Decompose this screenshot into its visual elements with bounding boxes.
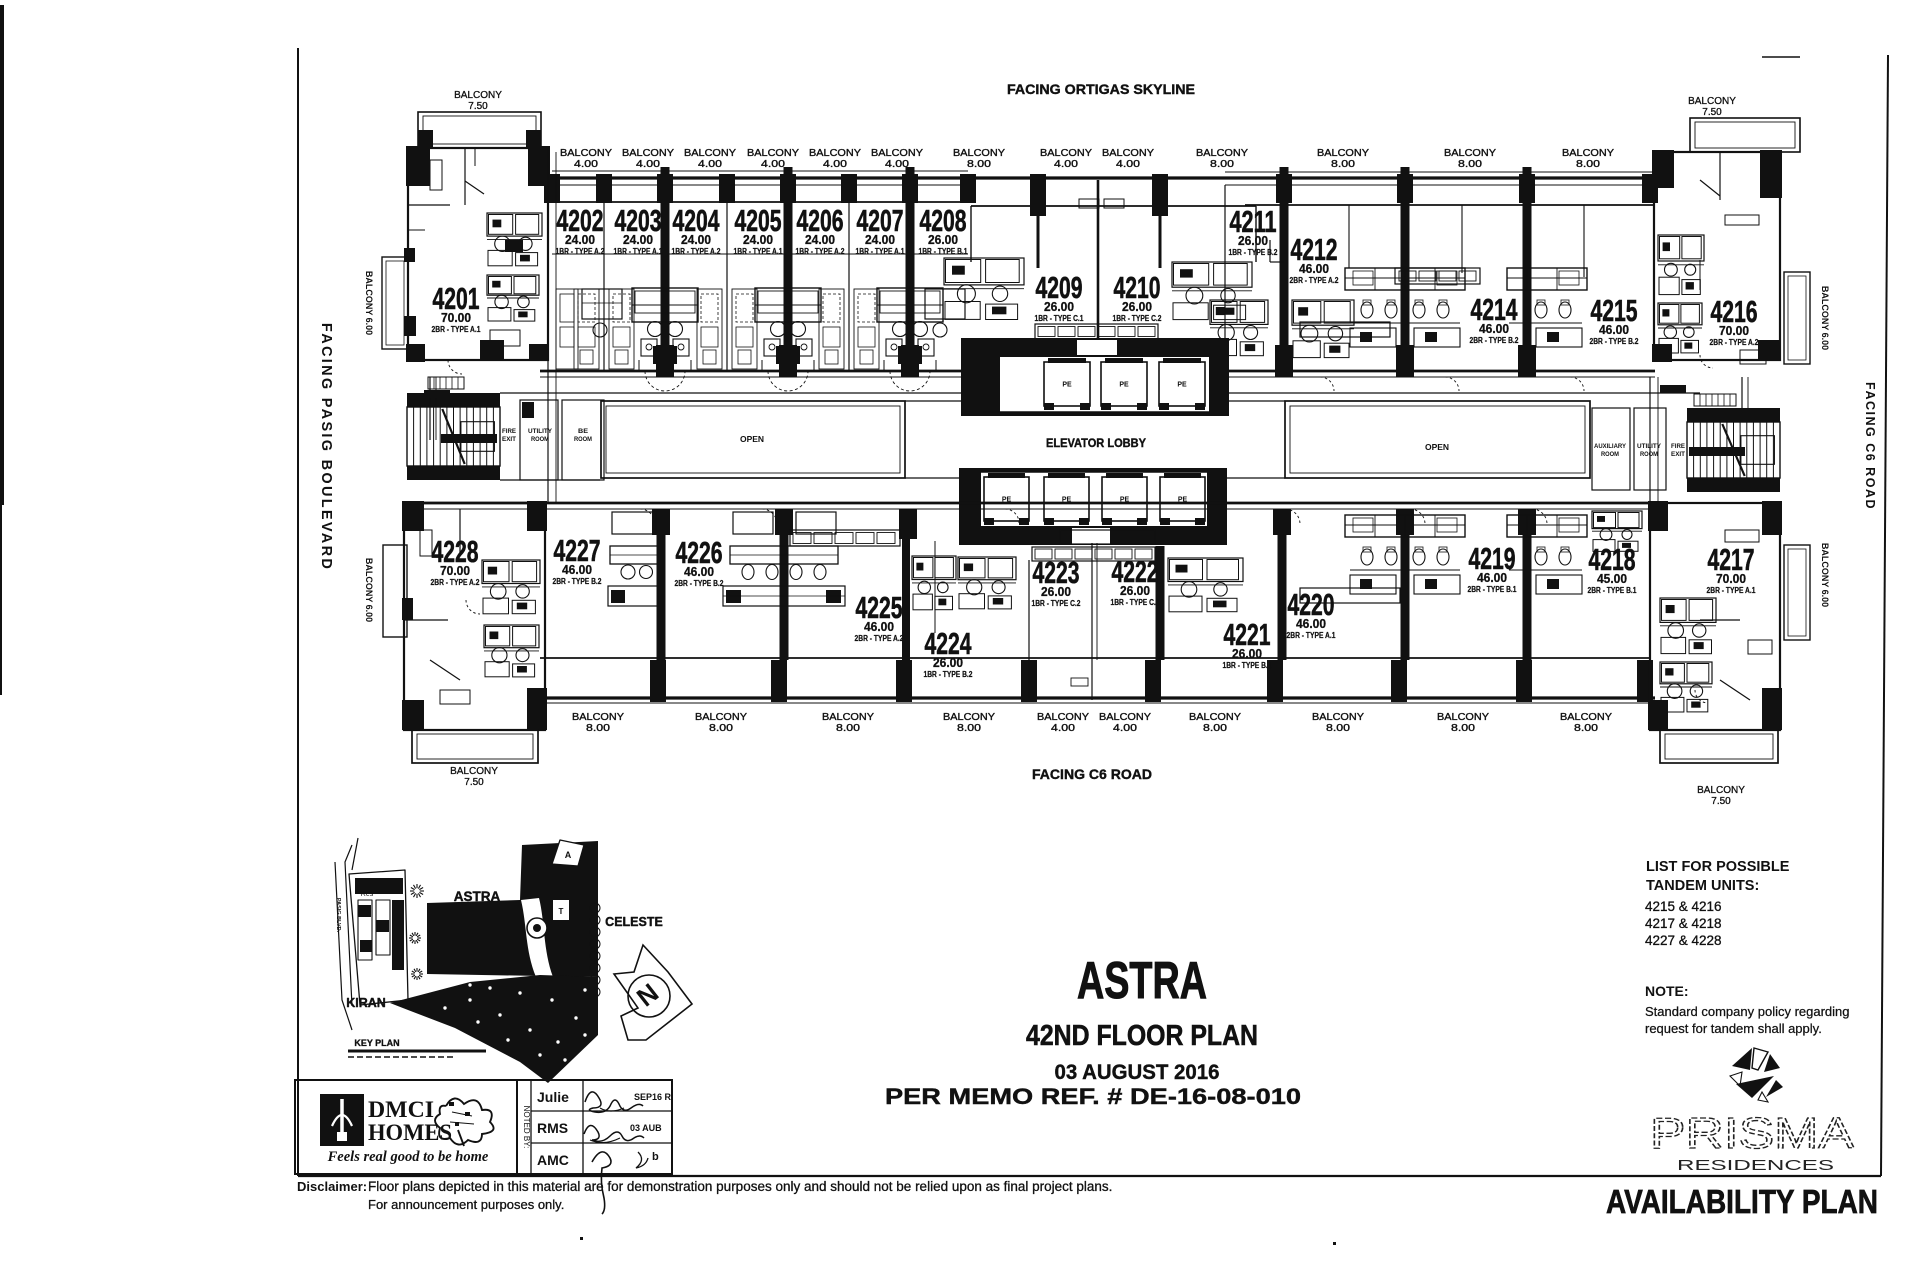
svg-text:BALCONY: BALCONY xyxy=(871,148,923,159)
svg-text:ROOM: ROOM xyxy=(531,436,549,443)
svg-text:FACING C6 ROAD: FACING C6 ROAD xyxy=(1032,766,1152,782)
svg-text:BALCONY: BALCONY xyxy=(809,148,861,159)
svg-text:1BR - TYPE B.1: 1BR - TYPE B.1 xyxy=(919,246,968,256)
svg-text:AMC: AMC xyxy=(537,1152,569,1168)
svg-text:Res: Res xyxy=(361,891,374,898)
svg-text:PER MEMO REF. # DE-16-08-010: PER MEMO REF. # DE-16-08-010 xyxy=(885,1084,1301,1109)
svg-text:1BR - TYPE C.1: 1BR - TYPE C.1 xyxy=(1111,597,1160,607)
svg-text:BALCONY: BALCONY xyxy=(454,90,502,101)
svg-text:8.00: 8.00 xyxy=(836,723,861,734)
svg-text:8.00: 8.00 xyxy=(1576,159,1601,170)
svg-text:4.00: 4.00 xyxy=(636,159,661,170)
svg-text:FACING ORTIGAS SKYLINE: FACING ORTIGAS SKYLINE xyxy=(1007,81,1195,97)
svg-text:BALCONY: BALCONY xyxy=(695,712,747,723)
svg-text:BALCONY: BALCONY xyxy=(943,712,995,723)
svg-text:BALCONY: BALCONY xyxy=(622,148,674,159)
svg-text:2BR - TYPE B.2: 2BR - TYPE B.2 xyxy=(1470,335,1519,345)
svg-text:2BR - TYPE A.2: 2BR - TYPE A.2 xyxy=(431,577,480,587)
svg-text:46.00: 46.00 xyxy=(1299,261,1329,276)
svg-text:4215 & 4216: 4215 & 4216 xyxy=(1645,899,1722,914)
svg-text:4.00: 4.00 xyxy=(1113,723,1138,734)
svg-text:4.00: 4.00 xyxy=(1054,159,1079,170)
svg-text:ELEVATOR LOBBY: ELEVATOR LOBBY xyxy=(1046,436,1146,450)
svg-text:4.00: 4.00 xyxy=(698,159,723,170)
svg-text:AUXILIARY: AUXILIARY xyxy=(1594,443,1627,450)
svg-text:UTILITY: UTILITY xyxy=(528,428,553,435)
svg-text:ASTRA: ASTRA xyxy=(1077,952,1207,1010)
svg-text:2BR - TYPE A.2: 2BR - TYPE A.2 xyxy=(1710,337,1759,347)
svg-text:26.00: 26.00 xyxy=(928,232,958,247)
svg-text:OPEN: OPEN xyxy=(740,434,764,444)
svg-text:46.00: 46.00 xyxy=(684,564,714,579)
svg-text:2BR - TYPE A.1: 2BR - TYPE A.1 xyxy=(1707,585,1756,595)
svg-text:26.00: 26.00 xyxy=(1238,233,1268,248)
svg-text:CELESTE: CELESTE xyxy=(605,915,663,929)
svg-text:AVAILABILITY PLAN: AVAILABILITY PLAN xyxy=(1606,1183,1878,1220)
svg-text:BALCONY 6.00: BALCONY 6.00 xyxy=(1820,286,1830,350)
svg-text:46.00: 46.00 xyxy=(864,619,894,634)
svg-text:8.00: 8.00 xyxy=(1574,723,1599,734)
svg-text:24.00: 24.00 xyxy=(743,232,773,247)
svg-text:BALCONY: BALCONY xyxy=(1317,148,1369,159)
svg-text:7.50: 7.50 xyxy=(1711,796,1731,807)
svg-text:1BR - TYPE A.1: 1BR - TYPE A.1 xyxy=(734,246,783,256)
svg-text:4.00: 4.00 xyxy=(1116,159,1141,170)
svg-text:BALCONY: BALCONY xyxy=(1099,712,1151,723)
svg-text:1BR - TYPE B.1: 1BR - TYPE B.1 xyxy=(1223,660,1272,670)
svg-text:1BR - TYPE A.1: 1BR - TYPE A.1 xyxy=(614,246,663,256)
svg-text:BALCONY: BALCONY xyxy=(747,148,799,159)
svg-text:SEP16 R: SEP16 R xyxy=(634,1092,672,1102)
svg-text:OPEN: OPEN xyxy=(1425,442,1449,452)
svg-text:26.00: 26.00 xyxy=(1232,646,1262,661)
svg-text:For announcement purposes only: For announcement purposes only. xyxy=(368,1197,564,1212)
svg-text:1BR - TYPE C.1: 1BR - TYPE C.1 xyxy=(1035,313,1084,323)
svg-text:FIRE: FIRE xyxy=(502,428,517,435)
svg-text:ROOM: ROOM xyxy=(1640,451,1658,458)
svg-text:BALCONY: BALCONY xyxy=(1697,785,1745,796)
svg-text:46.00: 46.00 xyxy=(562,562,592,577)
svg-text:1BR - TYPE B.2: 1BR - TYPE B.2 xyxy=(924,669,973,679)
svg-text:24.00: 24.00 xyxy=(865,232,895,247)
svg-text:7.50: 7.50 xyxy=(1702,107,1722,118)
svg-text:8.00: 8.00 xyxy=(1210,159,1235,170)
svg-text:24.00: 24.00 xyxy=(805,232,835,247)
svg-text:1BR - TYPE A.2: 1BR - TYPE A.2 xyxy=(556,246,605,256)
svg-text:2BR - TYPE B.2: 2BR - TYPE B.2 xyxy=(553,576,602,586)
svg-text:ASTRA: ASTRA xyxy=(454,889,501,904)
svg-text:70.00: 70.00 xyxy=(1719,323,1749,338)
svg-text:03 AUB: 03 AUB xyxy=(630,1123,662,1133)
svg-text:2BR - TYPE B.1: 2BR - TYPE B.1 xyxy=(1588,585,1637,595)
svg-text:PRISMA: PRISMA xyxy=(1650,1109,1855,1158)
svg-text:BALCONY: BALCONY xyxy=(450,766,498,777)
svg-text:NOTE:: NOTE: xyxy=(1645,983,1689,999)
svg-text:FACING PASIG BOULEVARD: FACING PASIG BOULEVARD xyxy=(318,323,334,571)
svg-text:45.00: 45.00 xyxy=(1597,571,1627,586)
svg-text:Feels real good to be home: Feels real good to be home xyxy=(327,1149,489,1165)
svg-text:FACING C6 ROAD: FACING C6 ROAD xyxy=(1863,382,1877,510)
svg-text:26.00: 26.00 xyxy=(1044,299,1074,314)
svg-text:NOTED BY:: NOTED BY: xyxy=(522,1106,531,1149)
svg-text:2BR - TYPE A.1: 2BR - TYPE A.1 xyxy=(1287,630,1336,640)
svg-text:BALCONY: BALCONY xyxy=(1437,712,1489,723)
svg-text:PE: PE xyxy=(1062,382,1072,389)
svg-text:BALCONY: BALCONY xyxy=(1560,712,1612,723)
svg-text:8.00: 8.00 xyxy=(586,723,611,734)
svg-text:26.00: 26.00 xyxy=(1041,584,1071,599)
svg-text:26.00: 26.00 xyxy=(1122,299,1152,314)
svg-text:2BR - TYPE B.2: 2BR - TYPE B.2 xyxy=(675,578,724,588)
svg-text:26.00: 26.00 xyxy=(1120,583,1150,598)
svg-text:2BR - TYPE B.2: 2BR - TYPE B.2 xyxy=(1590,336,1639,346)
svg-text:42ND FLOOR PLAN: 42ND FLOOR PLAN xyxy=(1026,1020,1258,1052)
svg-text:RMS: RMS xyxy=(537,1120,568,1136)
svg-text:b: b xyxy=(652,1151,659,1163)
svg-text:FIRE: FIRE xyxy=(1671,443,1686,450)
svg-text:KEY PLAN: KEY PLAN xyxy=(354,1038,399,1048)
svg-text:24.00: 24.00 xyxy=(565,232,595,247)
svg-text:46.00: 46.00 xyxy=(1599,322,1629,337)
svg-text:24.00: 24.00 xyxy=(681,232,711,247)
svg-text:PE: PE xyxy=(1177,382,1187,389)
svg-text:BALCONY: BALCONY xyxy=(572,712,624,723)
svg-text:BE: BE xyxy=(578,428,589,435)
svg-text:26.00: 26.00 xyxy=(933,655,963,670)
svg-text:7.50: 7.50 xyxy=(468,101,488,112)
svg-text:BALCONY: BALCONY xyxy=(953,148,1005,159)
svg-text:ROOM: ROOM xyxy=(1601,451,1619,458)
svg-text:2BR - TYPE A.1: 2BR - TYPE A.1 xyxy=(432,324,481,334)
svg-text:4.00: 4.00 xyxy=(885,159,910,170)
svg-text:1BR - TYPE A.2: 1BR - TYPE A.2 xyxy=(672,246,721,256)
svg-text:7.50: 7.50 xyxy=(464,777,484,788)
svg-text:8.00: 8.00 xyxy=(1326,723,1351,734)
svg-text:BALCONY: BALCONY xyxy=(1102,148,1154,159)
svg-text:LIST FOR POSSIBLE: LIST FOR POSSIBLE xyxy=(1646,859,1790,875)
svg-text:BALCONY: BALCONY xyxy=(1037,712,1089,723)
svg-text:8.00: 8.00 xyxy=(709,723,734,734)
svg-text:2BR - TYPE B.1: 2BR - TYPE B.1 xyxy=(1468,584,1517,594)
svg-text:1BR - TYPE C.2: 1BR - TYPE C.2 xyxy=(1032,598,1081,608)
svg-text:BALCONY 6.00: BALCONY 6.00 xyxy=(364,558,374,622)
svg-text:2BR - TYPE A.2: 2BR - TYPE A.2 xyxy=(855,633,904,643)
svg-text:TANDEM UNITS:: TANDEM UNITS: xyxy=(1646,878,1759,894)
svg-text:1BR - TYPE A.2: 1BR - TYPE A.2 xyxy=(796,246,845,256)
svg-text:03 AUGUST 2016: 03 AUGUST 2016 xyxy=(1055,1061,1220,1084)
svg-text:8.00: 8.00 xyxy=(967,159,992,170)
svg-text:46.00: 46.00 xyxy=(1296,616,1326,631)
svg-text:T: T xyxy=(559,907,564,916)
svg-text:8.00: 8.00 xyxy=(1458,159,1483,170)
svg-text:PE: PE xyxy=(1119,382,1129,389)
svg-text:1BR - TYPE C.2: 1BR - TYPE C.2 xyxy=(1113,313,1162,323)
svg-text:46.00: 46.00 xyxy=(1477,570,1507,585)
svg-text:2BR - TYPE A.2: 2BR - TYPE A.2 xyxy=(1290,275,1339,285)
svg-text:RESIDENCES: RESIDENCES xyxy=(1677,1157,1834,1174)
svg-text:Standard company policy regard: Standard company policy regarding xyxy=(1645,1004,1850,1019)
svg-text:8.00: 8.00 xyxy=(957,723,982,734)
svg-text:PASIG BLVD.: PASIG BLVD. xyxy=(335,898,341,933)
svg-text:Disclaimer:: Disclaimer: xyxy=(297,1179,367,1194)
svg-text:4.00: 4.00 xyxy=(761,159,786,170)
svg-text:BALCONY: BALCONY xyxy=(1189,712,1241,723)
svg-text:BALCONY: BALCONY xyxy=(822,712,874,723)
svg-text:DMCI: DMCI xyxy=(368,1097,434,1122)
svg-text:70.00: 70.00 xyxy=(440,563,470,578)
svg-text:8.00: 8.00 xyxy=(1451,723,1476,734)
svg-text:Julie: Julie xyxy=(537,1089,569,1105)
svg-text:4.00: 4.00 xyxy=(823,159,848,170)
svg-text:8.00: 8.00 xyxy=(1331,159,1356,170)
svg-text:BALCONY: BALCONY xyxy=(684,148,736,159)
svg-text:8.00: 8.00 xyxy=(1203,723,1228,734)
svg-text:BALCONY: BALCONY xyxy=(1688,96,1736,107)
svg-text:4.00: 4.00 xyxy=(1051,723,1076,734)
svg-text:BALCONY: BALCONY xyxy=(1312,712,1364,723)
svg-text:BALCONY 6.00: BALCONY 6.00 xyxy=(364,271,374,335)
svg-text:EXIT: EXIT xyxy=(502,436,516,443)
svg-text:KIRAN: KIRAN xyxy=(346,996,386,1010)
svg-text:24.00: 24.00 xyxy=(623,232,653,247)
svg-text:BALCONY: BALCONY xyxy=(560,148,612,159)
svg-text:46.00: 46.00 xyxy=(1479,321,1509,336)
svg-text:70.00: 70.00 xyxy=(1716,571,1746,586)
svg-text:A: A xyxy=(565,850,572,860)
svg-text:BALCONY 6.00: BALCONY 6.00 xyxy=(1820,543,1830,607)
svg-text:4.00: 4.00 xyxy=(574,159,599,170)
svg-text:4227 & 4228: 4227 & 4228 xyxy=(1645,933,1722,948)
svg-text:BALCONY: BALCONY xyxy=(1444,148,1496,159)
svg-text:EXIT: EXIT xyxy=(1671,451,1685,458)
svg-text:1BR - TYPE A.1: 1BR - TYPE A.1 xyxy=(856,246,905,256)
svg-text:ROOM: ROOM xyxy=(574,436,592,443)
svg-text:70.00: 70.00 xyxy=(441,310,471,325)
svg-text:BALCONY: BALCONY xyxy=(1562,148,1614,159)
svg-text:BALCONY: BALCONY xyxy=(1196,148,1248,159)
svg-text:request for tandem shall apply: request for tandem shall apply. xyxy=(1645,1021,1822,1036)
svg-text:4217 & 4218: 4217 & 4218 xyxy=(1645,916,1722,931)
svg-text:Floor plans depicted in this m: Floor plans depicted in this material ar… xyxy=(368,1179,1112,1194)
svg-text:BALCONY: BALCONY xyxy=(1040,148,1092,159)
